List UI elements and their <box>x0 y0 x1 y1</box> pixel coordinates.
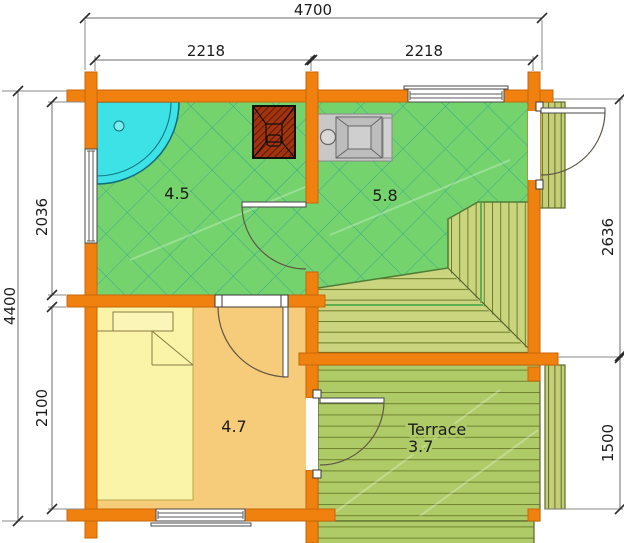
faucet-icon <box>321 130 336 145</box>
dim-top-left: 2218 <box>187 42 225 60</box>
dim-left-lower: 2100 <box>33 389 51 427</box>
door-entrance <box>528 102 605 189</box>
terrace-lower-step <box>318 521 534 543</box>
label-terrace-area: 3.7 <box>408 437 433 456</box>
window-left <box>85 149 97 243</box>
dim-right-upper: 2636 <box>599 218 617 256</box>
floor-plan-page: 4700 2218 2218 4400 2036 2100 2636 1500 … <box>0 0 624 543</box>
dim-left-total: 4400 <box>1 287 19 325</box>
label-main-room: 5.8 <box>372 186 397 205</box>
dim-top-total: 4700 <box>294 1 332 19</box>
pillow <box>113 312 173 331</box>
dim-left-upper: 2036 <box>33 198 51 236</box>
inner-wall-mid <box>306 272 318 398</box>
window-top <box>404 86 508 102</box>
inner-wall-top <box>306 72 318 203</box>
dim-right-lower: 1500 <box>599 424 617 462</box>
stove-icon <box>253 106 295 158</box>
terrace-north-wall <box>299 353 558 365</box>
terrace-post-se <box>528 509 540 521</box>
entry-landing <box>540 102 565 208</box>
sink-unit <box>318 114 392 161</box>
floor-plan-svg: 4700 2218 2218 4400 2036 2100 2636 1500 … <box>0 0 624 543</box>
window-bottom <box>151 509 251 526</box>
dim-top-right: 2218 <box>405 42 443 60</box>
bed <box>97 307 193 500</box>
label-bedroom: 4.7 <box>221 417 246 436</box>
mid-wall-left <box>67 295 215 307</box>
terrace-post-ne <box>528 367 540 381</box>
terrace-side-board <box>545 365 565 509</box>
shower-drain-icon <box>114 121 124 131</box>
inner-wall-low <box>306 470 318 543</box>
mid-wall-right <box>288 295 325 307</box>
label-shower-room: 4.5 <box>164 184 189 203</box>
